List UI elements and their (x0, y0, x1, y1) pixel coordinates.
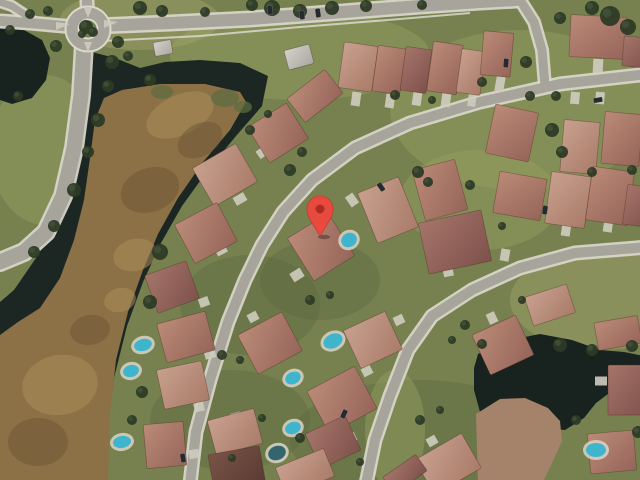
tree-highlight (466, 181, 471, 186)
tree-highlight (135, 3, 141, 9)
tree-highlight (437, 407, 441, 411)
tree-highlight (362, 1, 367, 6)
tree-highlight (429, 97, 433, 101)
tree-highlight (107, 57, 113, 63)
driveway (412, 92, 423, 106)
house-roof (143, 421, 187, 468)
tree-highlight (259, 415, 263, 419)
tree-highlight (628, 342, 633, 347)
driveway (593, 59, 604, 74)
tree-highlight (327, 292, 331, 296)
tree-highlight (158, 7, 163, 12)
tree-highlight (146, 76, 151, 81)
tree-highlight (296, 434, 301, 439)
tree-highlight (478, 78, 483, 83)
car (299, 10, 305, 20)
swimming-pool (586, 443, 606, 457)
marsh-patch (151, 85, 173, 99)
marker-pin-core[interactable] (316, 205, 325, 214)
tree-highlight (418, 1, 423, 6)
tree-highlight (588, 168, 593, 173)
car (542, 205, 548, 215)
house-roof (601, 111, 640, 166)
house-roof (545, 171, 592, 228)
tree-highlight (81, 22, 87, 28)
tree-highlight (298, 148, 303, 153)
tree-highlight (154, 246, 161, 253)
tree-highlight (104, 82, 109, 87)
tree-highlight (248, 1, 253, 6)
tree-highlight (69, 185, 75, 191)
car (503, 58, 509, 67)
tree-highlight (603, 9, 612, 18)
satellite-map[interactable] (0, 0, 640, 480)
tree-highlight (556, 14, 561, 19)
car (267, 5, 273, 15)
tree-highlight (124, 52, 129, 57)
driveway (188, 449, 199, 459)
tree-highlight (138, 388, 143, 393)
tree-highlight (449, 337, 453, 341)
tree-highlight (229, 455, 233, 459)
tree-highlight (526, 92, 531, 97)
tree-highlight (547, 125, 553, 131)
tree-highlight (218, 351, 223, 356)
tree-highlight (555, 340, 561, 346)
tree-highlight (519, 297, 523, 301)
car (315, 8, 321, 18)
tree-highlight (461, 321, 466, 326)
tree-highlight (26, 10, 31, 15)
tree-highlight (552, 92, 557, 97)
tree-highlight (572, 416, 577, 421)
tree-highlight (201, 8, 206, 13)
tree-highlight (424, 178, 429, 183)
house-roof (493, 171, 548, 221)
tree-highlight (265, 111, 269, 115)
house-roof (608, 365, 640, 415)
house-roof (338, 42, 378, 92)
tree-highlight (391, 91, 396, 96)
tree-highlight (237, 357, 241, 361)
tree-highlight (327, 3, 333, 9)
driveway (570, 92, 580, 105)
tree-highlight (622, 21, 629, 28)
tree-highlight (79, 31, 83, 35)
house-roof (480, 31, 514, 77)
tree-highlight (587, 3, 593, 9)
tree-highlight (14, 92, 19, 97)
tree-highlight (128, 416, 133, 421)
marsh-patch (8, 418, 68, 466)
driveway (595, 377, 607, 386)
tree-highlight (478, 340, 483, 345)
tree-highlight (44, 7, 49, 12)
tree-highlight (84, 148, 89, 153)
tree-highlight (89, 28, 94, 33)
tree-highlight (588, 346, 593, 351)
marsh-patch (234, 101, 252, 113)
marsh-wetland (476, 398, 562, 480)
tree-highlight (414, 168, 419, 173)
tree-highlight (628, 166, 633, 171)
tree-highlight (634, 428, 639, 433)
tree-highlight (522, 58, 527, 63)
tree-highlight (30, 248, 35, 253)
tree-highlight (286, 166, 291, 171)
tree-highlight (357, 459, 361, 463)
tree-highlight (6, 26, 11, 31)
tree-highlight (145, 297, 151, 303)
house-roof (622, 36, 640, 68)
tree-highlight (114, 38, 119, 43)
tree-highlight (416, 416, 421, 421)
tree-highlight (50, 222, 55, 227)
tree-highlight (246, 126, 251, 131)
tree-highlight (52, 42, 57, 47)
tree-highlight (499, 223, 503, 227)
tree-highlight (306, 296, 311, 301)
tree-highlight (93, 115, 99, 121)
satellite-map-canvas[interactable] (0, 0, 640, 480)
tree-highlight (558, 148, 563, 153)
house-roof (153, 40, 173, 57)
marsh-patch (211, 89, 239, 107)
